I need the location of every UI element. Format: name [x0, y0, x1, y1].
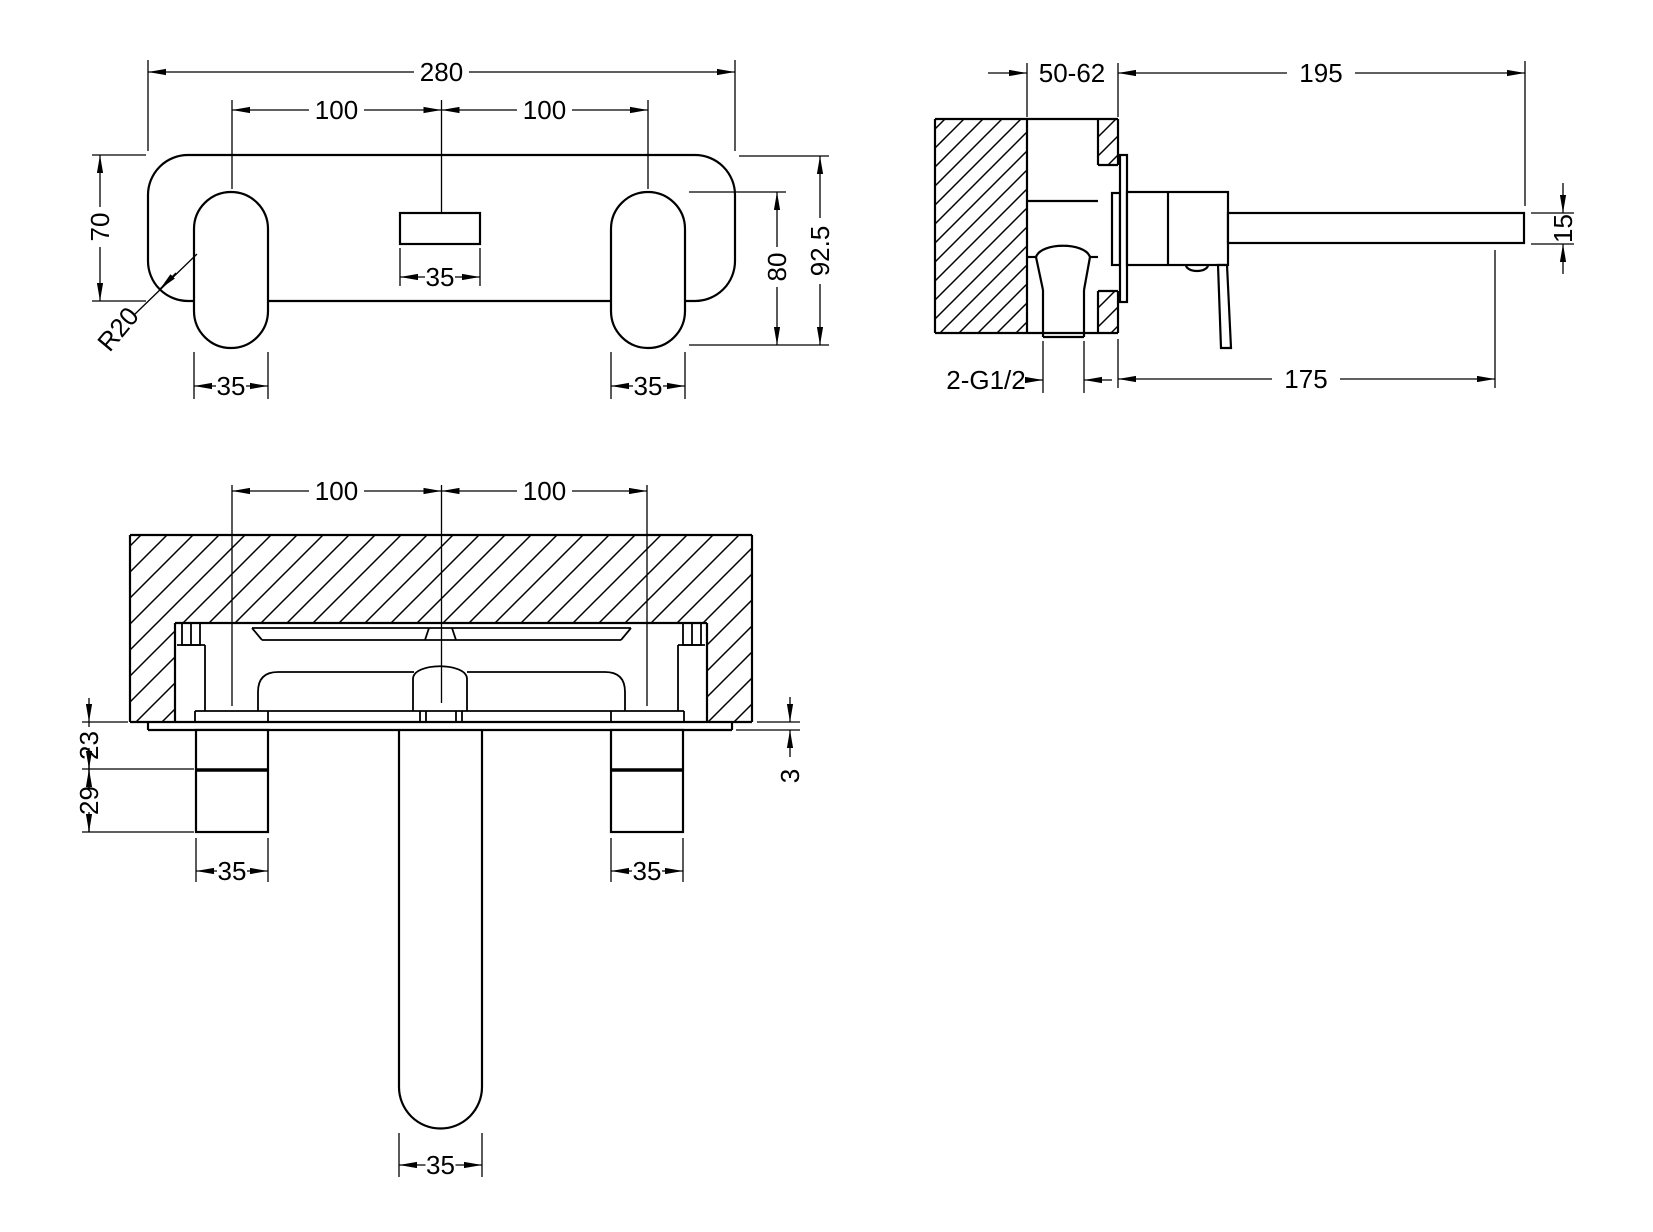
front-handle-left	[194, 192, 268, 348]
dim-pitch-left-label: 100	[315, 95, 358, 125]
dim-handle-width-left-label: 35	[217, 371, 246, 401]
side-spout	[1228, 213, 1524, 243]
dim-spout-width-label: 35	[426, 262, 455, 292]
dim-overall-width-label: 280	[420, 57, 463, 87]
dim-handle-width-right-label: 35	[634, 371, 663, 401]
drawing-sheet: 280 100 100 70 R20 92.	[0, 0, 1653, 1232]
dim-spout-diameter-label: 15	[1548, 214, 1578, 243]
dim-connector-depth-label: 29	[74, 786, 104, 815]
dim-pitch-right-label: 100	[523, 95, 566, 125]
dim-plan-spout-width-label: 35	[426, 1150, 455, 1180]
front-handle-right	[611, 192, 685, 348]
dim-outlet-projection-label: 175	[1284, 364, 1327, 394]
dim-recess-depth-label: 50-62	[1039, 58, 1106, 88]
dim-plan-handle-width-left-label: 35	[218, 856, 247, 886]
dim-plan-pitch-left-label: 100	[315, 476, 358, 506]
plan-connector-left	[196, 730, 268, 832]
dim-plate-height-label: 70	[85, 213, 115, 242]
dim-plate-standoff-label: 23	[74, 731, 104, 760]
dim-overall-drop-label: 92.5	[805, 226, 835, 277]
dim-spout-reach-label: 195	[1299, 58, 1342, 88]
dim-handle-drop-label: 80	[762, 253, 792, 282]
dim-plan-pitch-right-label: 100	[523, 476, 566, 506]
dim-plate-thickness-label: 3	[775, 769, 805, 783]
plan-connector-right	[611, 730, 683, 832]
front-spout-window	[400, 213, 480, 244]
dim-plan-handle-width-right-label: 35	[633, 856, 662, 886]
dim-inlet-connection-label: 2-G1/2	[946, 365, 1026, 395]
technical-drawing-canvas: 280 100 100 70 R20 92.	[0, 0, 1653, 1232]
